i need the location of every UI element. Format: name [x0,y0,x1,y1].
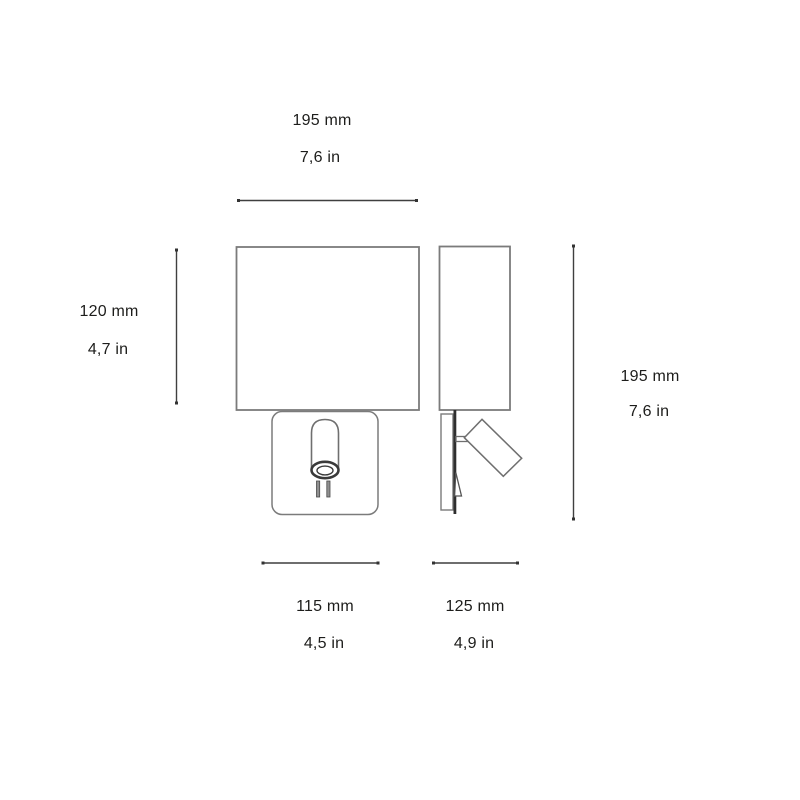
label-backplate-width-in: 4,5 in [304,636,344,652]
switch-prong-right [327,481,330,497]
side-switch-lever [455,473,462,497]
label-overall-depth-mm: 125 mm [446,599,505,615]
front-view [237,247,420,515]
dim-dot [516,562,519,565]
front-shade [237,247,420,410]
side-mounting-plate [454,410,457,514]
switch-prong-left [317,481,320,497]
dim-dot [175,402,178,405]
dimension-diagram: 195 mm 7,6 in 120 mm 4,7 in 195 mm 7,6 i… [0,0,800,800]
dim-dot [415,199,418,202]
label-overall-depth-in: 4,9 in [454,636,494,652]
reading-light-head [464,419,521,476]
lamp-technical-drawing [0,0,800,800]
label-shade-height-mm: 120 mm [80,304,139,320]
dim-dot [432,562,435,565]
dim-dot [377,562,380,565]
dim-dot [237,199,240,202]
label-shade-width-in: 7,6 in [300,150,340,166]
side-view [440,247,522,515]
label-shade-width-mm: 195 mm [293,113,352,129]
dim-dot [572,245,575,248]
side-shade [440,247,511,411]
label-shade-height-in: 4,7 in [88,342,128,358]
dim-dot [572,518,575,521]
dim-dot [262,562,265,565]
side-backplate [441,414,453,510]
reading-light-lens-inner [317,466,333,475]
dim-dot [175,249,178,252]
label-overall-height-mm: 195 mm [621,369,680,385]
label-overall-height-in: 7,6 in [629,404,669,420]
label-backplate-width-mm: 115 mm [296,599,354,615]
